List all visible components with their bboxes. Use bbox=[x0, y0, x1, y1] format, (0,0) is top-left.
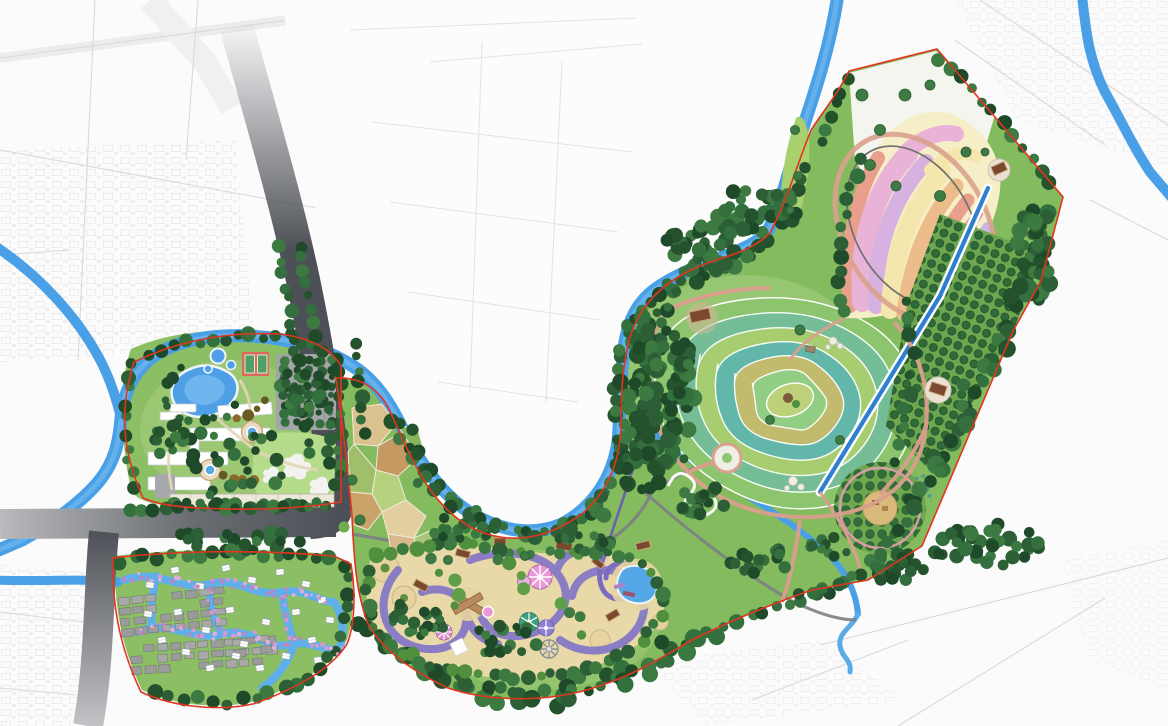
orchard-building bbox=[925, 377, 951, 403]
round-pool-small bbox=[227, 361, 236, 370]
roundabout-plaza bbox=[713, 444, 741, 472]
carousel-disc-pink-large bbox=[528, 565, 552, 589]
round-pool bbox=[211, 349, 226, 364]
west-arterial-road bbox=[0, 522, 336, 524]
round-pool-small2 bbox=[204, 365, 212, 373]
carousel-disc-violet bbox=[538, 620, 554, 636]
roundabout-island bbox=[339, 522, 350, 533]
ferris-wheel bbox=[540, 640, 558, 658]
meadow-barn bbox=[988, 159, 1010, 181]
hill-hut bbox=[806, 345, 816, 352]
master-plan-svg bbox=[0, 0, 1168, 726]
master-plan-canvas[interactable] bbox=[0, 0, 1168, 726]
south-arterial-road bbox=[88, 532, 104, 726]
courtyard-building bbox=[686, 302, 718, 334]
tennis-courts bbox=[242, 352, 269, 376]
